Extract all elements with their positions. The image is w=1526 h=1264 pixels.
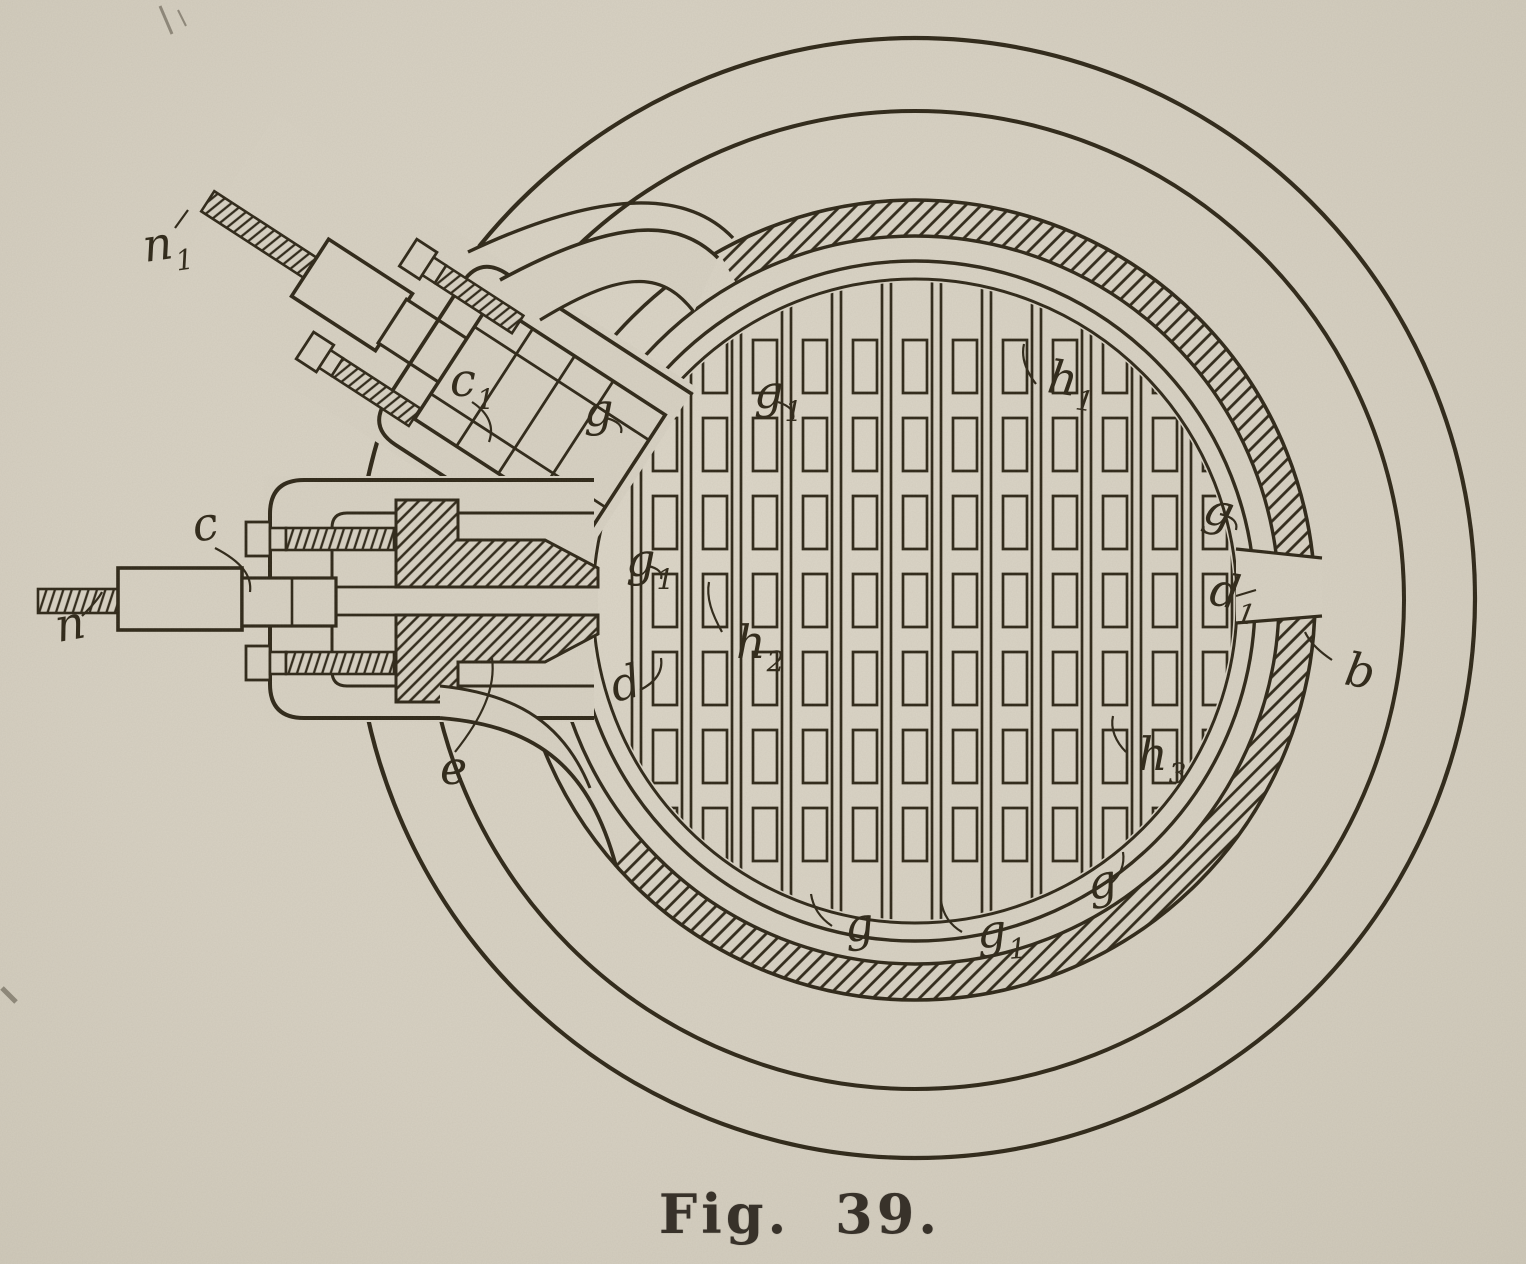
paper-grain xyxy=(0,0,1526,1264)
scanned-page: n1c1cnedgg1h1g1h2gd1bh3gg1g Fig. 39. xyxy=(0,0,1526,1264)
figure-caption: Fig. 39. xyxy=(480,1182,1120,1246)
figure-39-engraving: n1c1cnedgg1h1g1h2gd1bh3gg1g xyxy=(0,0,1526,1264)
